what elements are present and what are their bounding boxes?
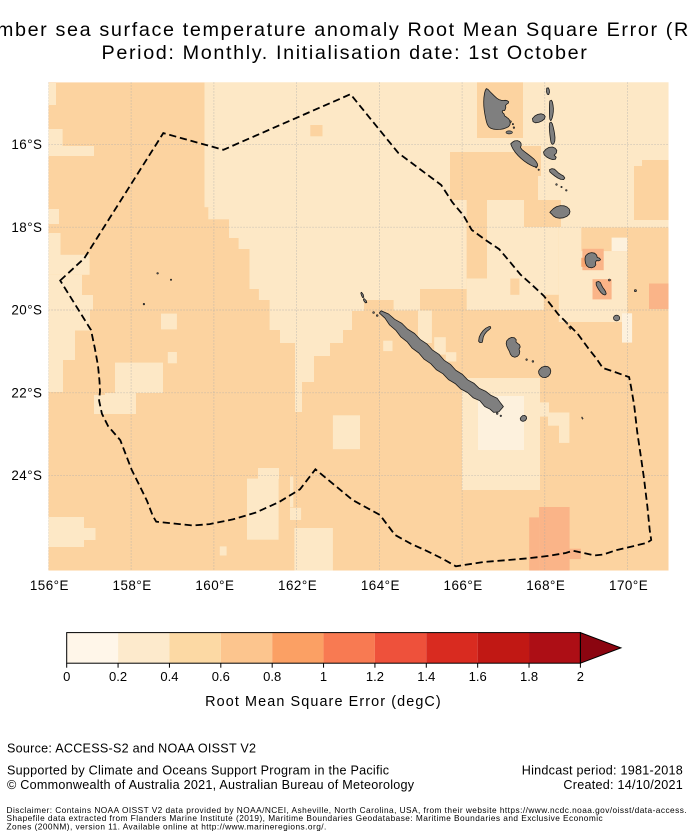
svg-text:168°E: 168°E — [526, 578, 565, 593]
svg-text:162°E: 162°E — [278, 578, 317, 593]
svg-text:24°S: 24°S — [11, 468, 42, 483]
svg-text:16°S: 16°S — [11, 137, 42, 152]
svg-text:December sea surface temperatu: December sea surface temperature anomaly… — [0, 19, 690, 41]
svg-text:158°E: 158°E — [113, 578, 152, 593]
svg-text:Source: ACCESS-S2 and NOAA OIS: Source: ACCESS-S2 and NOAA OISST V2 — [7, 742, 256, 756]
svg-text:1.8: 1.8 — [520, 669, 538, 684]
svg-text:20°S: 20°S — [11, 303, 42, 318]
svg-text:170°E: 170°E — [609, 578, 648, 593]
svg-text:2: 2 — [577, 669, 584, 684]
svg-text:Created: 14/10/2021: Created: 14/10/2021 — [563, 778, 683, 792]
svg-text:0.2: 0.2 — [109, 669, 127, 684]
svg-text:Zones (200NM), version 11. Ava: Zones (200NM), version 11. Available onl… — [7, 822, 327, 832]
svg-text:Period: Monthly. Initialisatio: Period: Monthly. Initialisation date: 1s… — [102, 42, 589, 64]
svg-text:Supported by Climate and Ocean: Supported by Climate and Oceans Support … — [7, 764, 389, 778]
svg-text:0: 0 — [63, 669, 70, 684]
svg-text:0.6: 0.6 — [212, 669, 230, 684]
svg-text:1.4: 1.4 — [417, 669, 435, 684]
svg-text:0.4: 0.4 — [160, 669, 178, 684]
svg-text:166°E: 166°E — [444, 578, 483, 593]
svg-text:© Commonwealth of Australia 20: © Commonwealth of Australia 2021, Austra… — [7, 778, 415, 792]
svg-text:0.8: 0.8 — [263, 669, 281, 684]
svg-text:Root Mean Square Error (degC): Root Mean Square Error (degC) — [205, 694, 442, 710]
svg-text:1: 1 — [320, 669, 327, 684]
svg-text:22°S: 22°S — [11, 385, 42, 400]
svg-text:156°E: 156°E — [30, 578, 69, 593]
svg-text:160°E: 160°E — [195, 578, 234, 593]
svg-text:164°E: 164°E — [361, 578, 400, 593]
svg-text:18°S: 18°S — [11, 220, 42, 235]
svg-text:1.2: 1.2 — [366, 669, 384, 684]
svg-text:1.6: 1.6 — [469, 669, 487, 684]
svg-text:Hindcast period: 1981-2018: Hindcast period: 1981-2018 — [522, 764, 683, 778]
